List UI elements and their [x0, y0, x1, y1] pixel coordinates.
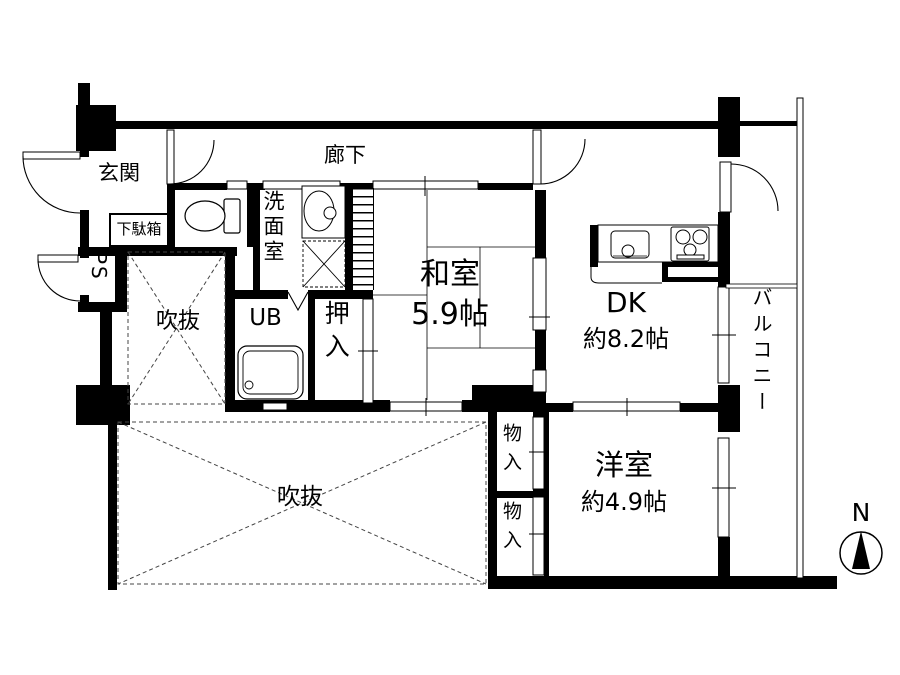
- wall-top: [110, 121, 726, 129]
- floorplan: 下駄箱 玄関 PS 廊下 洗面室 UB 押入 和室 5.9帖 DK 約8.2帖 …: [0, 0, 900, 675]
- balcony-door-leaf: [720, 162, 731, 212]
- rouka-label: 廊下: [324, 144, 366, 166]
- wall-ub-top-a: [235, 290, 288, 299]
- dk-door-arc: [540, 139, 585, 184]
- balcony-label: バルコニー: [750, 287, 771, 417]
- ps-label: PS: [88, 252, 109, 281]
- kitchen-sink-icon: [611, 231, 649, 258]
- yoshitsu-label: 洋室: [554, 450, 694, 480]
- entrance-door-leaf: [23, 152, 80, 159]
- wall-senmen-left: [253, 185, 260, 290]
- wall-top-ext: [740, 121, 797, 126]
- wall-washitsu-dk-a: [535, 190, 546, 258]
- gas-stove-icon: [671, 227, 709, 261]
- wall-mono-divider: [497, 491, 535, 498]
- tatami-lines: [373, 190, 535, 400]
- balcony-rail: [797, 98, 803, 578]
- toilet-icon: [185, 199, 240, 233]
- wall-kitchen-stub: [590, 225, 598, 267]
- wall-yoshitsu-right: [718, 537, 730, 578]
- dk-label: DK: [556, 288, 696, 317]
- mononyu-sliding-door-1: [533, 417, 544, 489]
- wall-ps-right: [115, 250, 127, 312]
- bathtub-icon: [238, 346, 303, 399]
- genkan-label: 玄関: [98, 162, 140, 184]
- wall-ub-top-b: [308, 290, 373, 299]
- wall-left-d: [100, 307, 112, 389]
- entrance-door-arc: [23, 156, 80, 213]
- wall-topleft-pillar: [76, 105, 116, 151]
- wall-mono-left: [488, 412, 497, 578]
- fukinuke-upper-label: 吹抜: [136, 310, 220, 333]
- yoshitsu-size: 約4.9帖: [554, 490, 694, 515]
- mononyu-upper-label: 物入: [500, 423, 520, 481]
- washing-machine-space-icon: [303, 241, 345, 287]
- wall-ub-left: [225, 247, 235, 407]
- washitsu-label: 和室: [385, 259, 515, 291]
- senmen-label: 洗面室: [262, 190, 284, 265]
- wall-washitsu-dk-b: [535, 330, 546, 370]
- dk-door-jamb: [533, 130, 541, 184]
- wall-left-thin: [108, 425, 117, 590]
- genkan-door-jamb: [167, 130, 174, 184]
- compass-icon: [840, 531, 882, 574]
- wall-senmen-right: [345, 185, 352, 290]
- wall-left-a: [80, 148, 89, 157]
- washitsu-dk-panel-2: [533, 370, 546, 392]
- wall-yoshitsu-left-edge: [544, 412, 549, 578]
- ps-door-leaf: [38, 255, 78, 262]
- fukinuke-lower-label: 吹抜: [258, 485, 342, 509]
- wall-bottom: [488, 576, 837, 589]
- board-strip: [352, 188, 374, 290]
- getabako-box: 下駄箱: [109, 213, 169, 247]
- getabako-label: 下駄箱: [116, 222, 161, 238]
- washitsu-dk-panel-1: [533, 258, 546, 330]
- wash-basin-icon: [302, 186, 345, 238]
- kitchen-lower-slot: [668, 267, 718, 277]
- wall-ub-oshiire-divider: [308, 299, 315, 407]
- wall-topright-pillar: [718, 97, 740, 157]
- ub-label: UB: [238, 306, 293, 330]
- balcony-door-arc: [731, 164, 778, 211]
- mononyu-sliding-door-2: [533, 497, 544, 575]
- dk-size: 約8.2帖: [556, 327, 696, 352]
- wall-bottomleft-pillar: [76, 385, 130, 425]
- oshiire-label: 押入: [322, 300, 348, 366]
- wall-dk-yoshitsu-a: [546, 403, 573, 412]
- wall-corr-c: [478, 183, 533, 190]
- washitsu-size: 5.9帖: [385, 299, 515, 331]
- mononyu-lower-label: 物入: [500, 501, 520, 559]
- ub-under-window: [263, 403, 287, 410]
- wall-washitsu-dk-c: [535, 392, 546, 412]
- ps-door-arc: [38, 259, 80, 301]
- wall-block-br: [472, 385, 535, 412]
- compass-label: N: [845, 500, 877, 526]
- wall-balcony-pillar: [718, 385, 740, 432]
- toilet-door: [227, 181, 247, 189]
- genkan-door-arc: [170, 140, 214, 184]
